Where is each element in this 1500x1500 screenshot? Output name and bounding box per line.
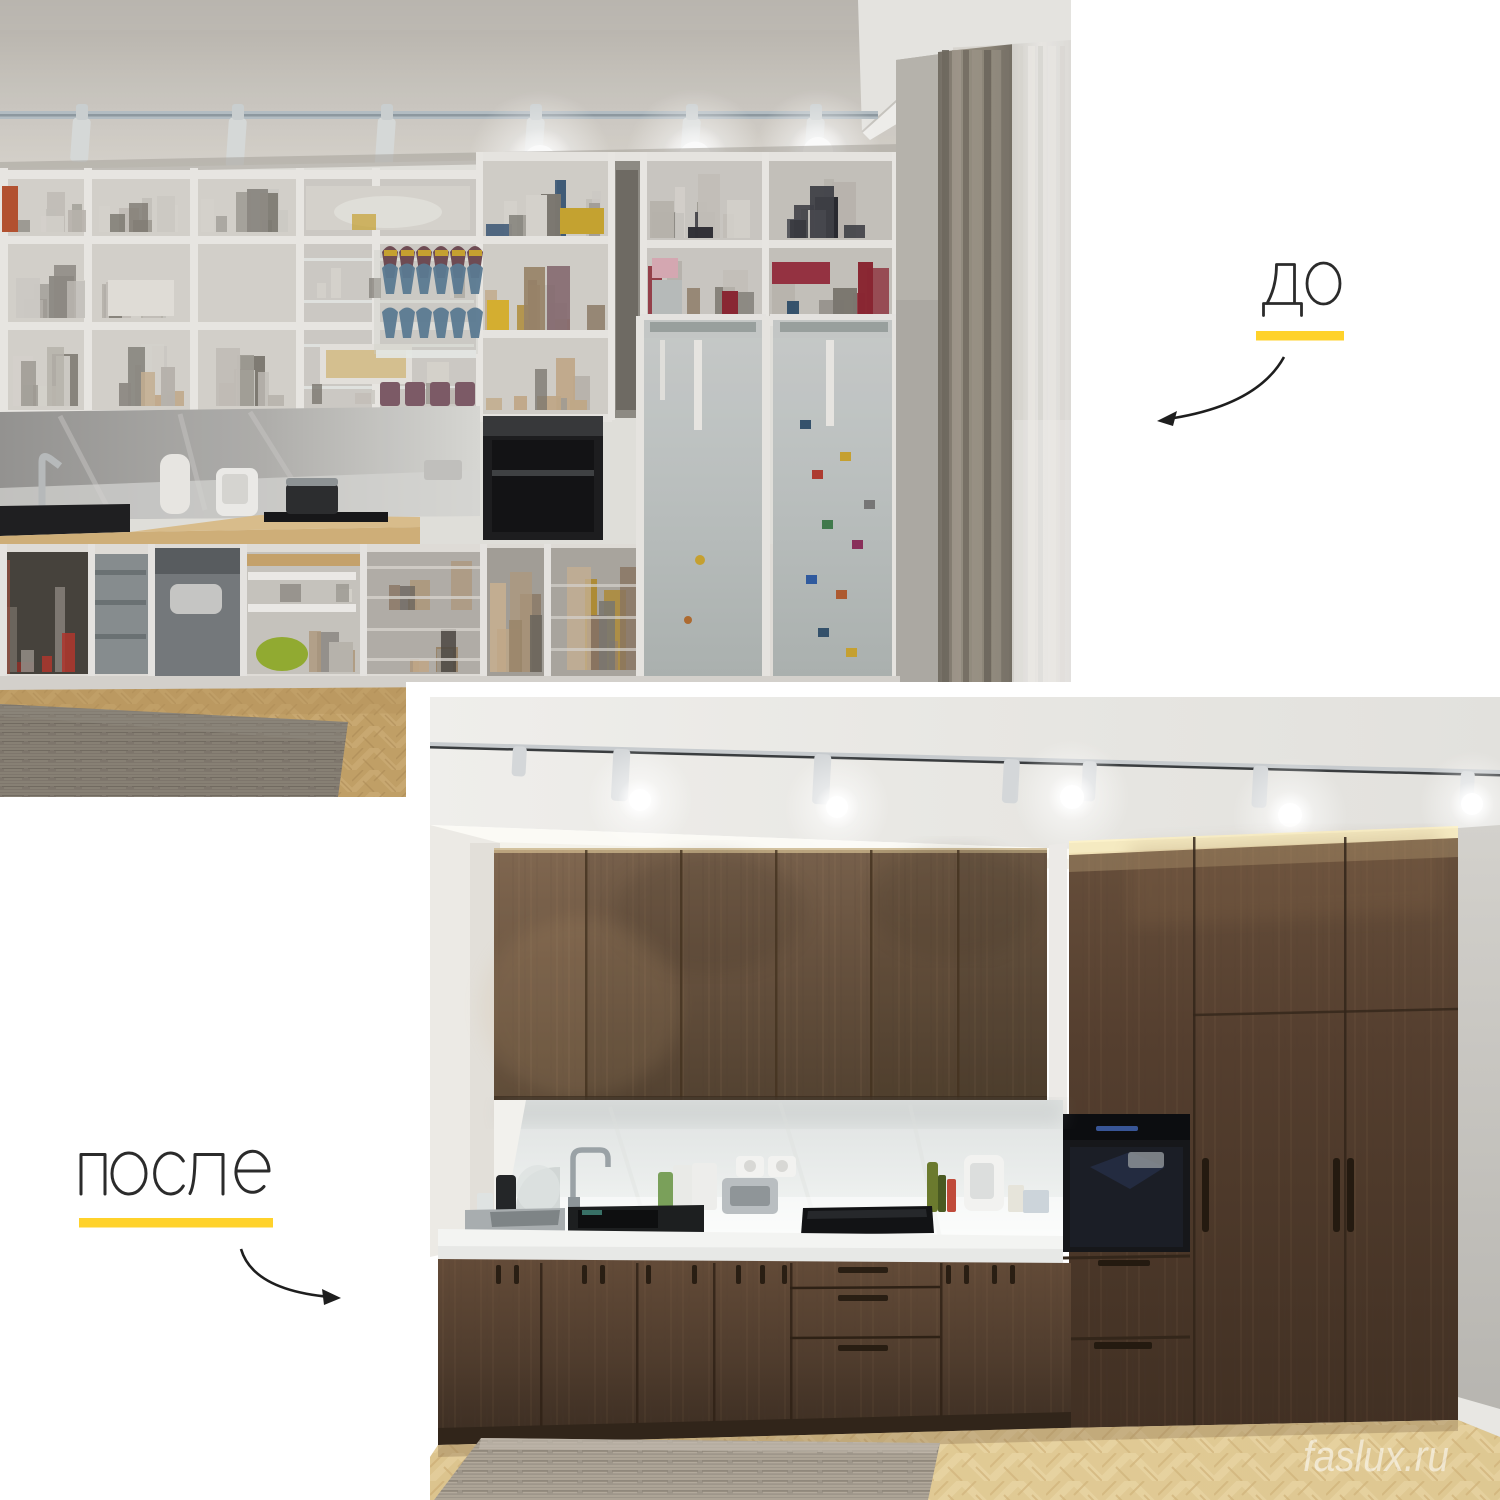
svg-text:faslux.ru: faslux.ru: [1303, 1432, 1449, 1481]
